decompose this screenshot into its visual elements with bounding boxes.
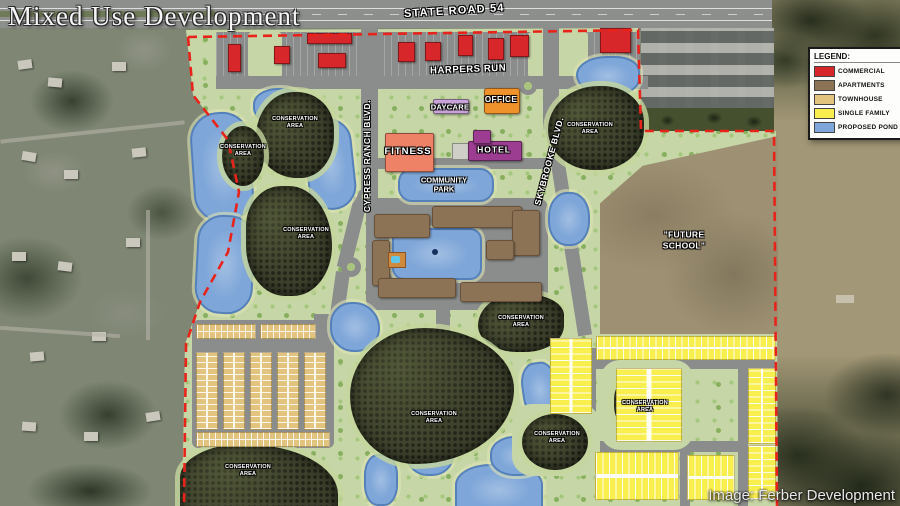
commercial-building: [228, 44, 241, 72]
roundabout: [519, 77, 537, 95]
image-attribution: Image: Ferber Development: [708, 487, 895, 504]
conservation-area-label: CONSERVATION AREA: [225, 464, 271, 478]
conservation-area-label: CONSERVATION AREA: [220, 144, 266, 158]
commercial-building: [274, 46, 290, 64]
townhouse-row: [260, 324, 316, 339]
community-park-label: COMMUNITY PARK: [416, 176, 472, 195]
aerial-house: [22, 422, 37, 432]
aerial-house: [126, 238, 140, 247]
conservation-area-label: CONSERVATION AREA: [534, 431, 580, 445]
legend-swatch-townhouse: [814, 94, 835, 105]
aerial-house: [64, 170, 78, 179]
aerial-house: [112, 62, 126, 71]
townhouse-row: [250, 352, 272, 430]
pool: [391, 256, 400, 263]
apartment-building: [378, 278, 456, 298]
hotel-building: [473, 130, 491, 144]
legend-label: TOWNHOUSE: [838, 96, 883, 103]
aerial-house: [17, 59, 32, 70]
townhouse-row: [304, 352, 326, 430]
aerial-structure: [836, 295, 854, 303]
single-family-block: [596, 336, 776, 360]
commercial-building: [458, 35, 473, 56]
townhouse-row: [223, 352, 245, 430]
townhouse-row: [196, 432, 330, 447]
aerial-house: [132, 147, 147, 157]
apartment-building: [460, 282, 542, 302]
single-family-block: [550, 338, 592, 414]
legend-item-single-family: SINGLE FAMILY: [814, 108, 900, 119]
conservation-area-label: CONSERVATION AREA: [498, 315, 544, 329]
apartment-building: [486, 240, 514, 260]
legend-item-commercial: COMMERCIAL: [814, 66, 900, 77]
roundabout: [341, 257, 361, 277]
tree-line: [641, 108, 774, 133]
legend-label: PROPOSED POND: [838, 124, 898, 131]
conservation-area-label: CONSERVATION AREA: [272, 116, 318, 130]
conservation-area-blob: [256, 92, 334, 178]
commercial-building: [398, 42, 415, 62]
legend-label: SINGLE FAMILY: [838, 110, 890, 117]
commercial-building: [488, 38, 504, 60]
road: [738, 358, 748, 506]
legend: LEGEND: COMMERCIAL APARTMENTS TOWNHOUSE …: [808, 47, 900, 140]
aerial-house: [58, 261, 73, 272]
apartment-building: [432, 206, 522, 228]
legend-item-proposed-pond: PROPOSED POND: [814, 122, 900, 133]
fitness-label: FITNESS: [384, 146, 431, 158]
apartment-building: [374, 214, 430, 238]
legend-swatch-proposed-pond: [814, 122, 835, 133]
legend-label: COMMERCIAL: [838, 68, 885, 75]
legend-label: APARTMENTS: [838, 82, 885, 89]
site-plan-map: STATE ROAD 54 HARPERS RUN CYPRESS RANCH …: [0, 0, 900, 506]
commercial-building: [425, 42, 441, 61]
future-school-label: "FUTURE SCHOOL": [656, 229, 712, 250]
conservation-area-label: CONSERVATION AREA: [567, 122, 613, 136]
aerial-house: [48, 77, 63, 87]
hotel-label: HOTEL: [477, 145, 511, 156]
daycare-label: DAYCARE: [431, 102, 470, 111]
aerial-house: [30, 351, 45, 361]
townhouse-row: [277, 352, 299, 430]
conservation-area-label: CONSERVATION AREA: [411, 411, 457, 425]
commercial-building: [318, 53, 346, 68]
conservation-area-label: CONSERVATION AREA: [622, 400, 668, 414]
pond: [548, 192, 590, 246]
commercial-building: [307, 33, 352, 44]
legend-swatch-single-family: [814, 108, 835, 119]
legend-swatch-apartments: [814, 80, 835, 91]
aerial-house: [12, 252, 26, 261]
legend-title: LEGEND:: [814, 52, 900, 63]
townhouse-row: [196, 352, 218, 430]
aerial-house: [84, 432, 98, 441]
conservation-area-label: CONSERVATION AREA: [283, 227, 329, 241]
pond-fountain: [432, 249, 438, 255]
apartment-building: [512, 210, 540, 256]
pond: [330, 302, 380, 352]
single-family-block: [595, 452, 679, 500]
townhouse-row: [196, 324, 256, 339]
conservation-area-blob: [246, 186, 332, 296]
legend-item-townhouse: TOWNHOUSE: [814, 94, 900, 105]
legend-item-apartments: APARTMENTS: [814, 80, 900, 91]
legend-swatch-commercial: [814, 66, 835, 77]
cypress-ranch-blvd-label: CYPRESS RANCH BLVD.: [362, 91, 372, 221]
page-title: Mixed Use Development: [8, 1, 300, 32]
commercial-building: [600, 28, 631, 53]
pond: [364, 454, 398, 506]
aerial-road: [146, 210, 150, 340]
single-family-block: [748, 368, 776, 444]
office-label: OFFICE: [485, 95, 517, 105]
commercial-building: [510, 35, 529, 57]
